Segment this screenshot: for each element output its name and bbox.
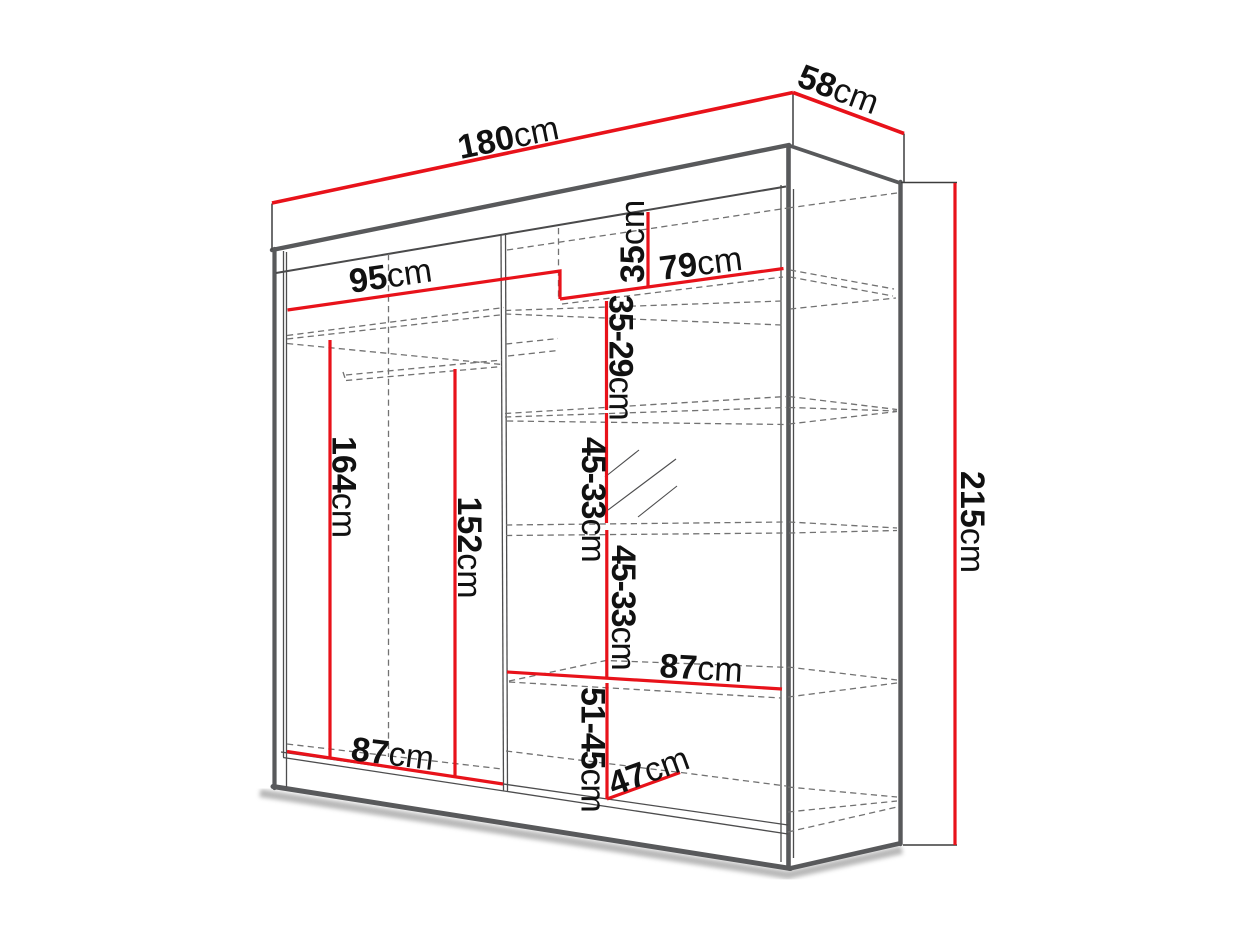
svg-text:164cm: 164cm <box>325 436 363 538</box>
svg-text:51-45cm: 51-45cm <box>574 687 612 812</box>
svg-text:215cm: 215cm <box>953 471 991 573</box>
svg-text:35cm: 35cm <box>614 200 652 283</box>
svg-text:45-33cm: 45-33cm <box>604 545 642 670</box>
svg-text:87cm: 87cm <box>659 647 744 690</box>
svg-text:35-29cm: 35-29cm <box>602 295 640 420</box>
svg-text:45-33cm: 45-33cm <box>574 437 612 562</box>
svg-text:152cm: 152cm <box>450 497 488 599</box>
